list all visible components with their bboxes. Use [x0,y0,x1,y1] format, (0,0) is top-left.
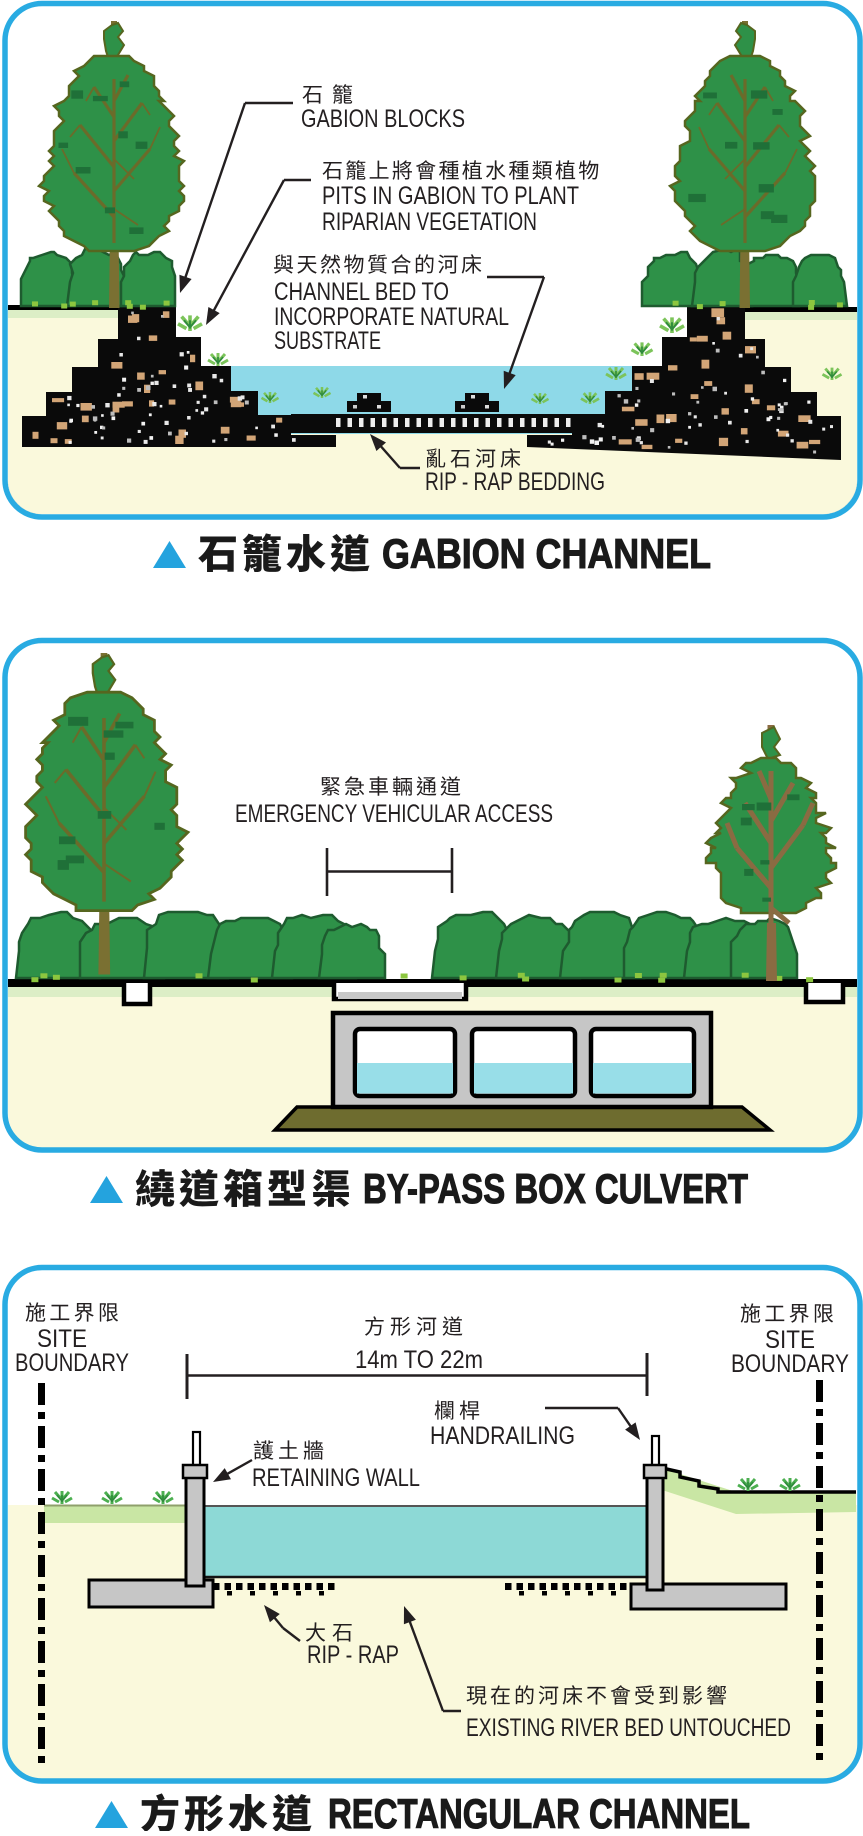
svg-text:RIP - RAP BEDDING: RIP - RAP BEDDING [425,468,605,496]
svg-text:HANDRAILING: HANDRAILING [430,1422,575,1450]
svg-text:EMERGENCY VEHICULAR ACCESS: EMERGENCY VEHICULAR ACCESS [235,800,553,828]
svg-text:PITS IN GABION TO PLANT: PITS IN GABION TO PLANT [322,182,579,210]
svg-text:BOUNDARY: BOUNDARY [731,1350,849,1378]
svg-text:RECTANGULAR CHANNEL: RECTANGULAR CHANNEL [328,1790,750,1831]
svg-text:BOUNDARY: BOUNDARY [15,1349,129,1377]
svg-text:GABION BLOCKS: GABION BLOCKS [301,105,465,133]
svg-text:BY-PASS BOX CULVERT: BY-PASS BOX CULVERT [363,1165,748,1212]
svg-text:RIPARIAN VEGETATION: RIPARIAN VEGETATION [322,208,537,236]
svg-text:EXISTING RIVER BED UNTOUCHED: EXISTING RIVER BED UNTOUCHED [466,1714,791,1742]
svg-text:14m TO 22m: 14m TO 22m [355,1346,483,1374]
svg-text:RIP - RAP: RIP - RAP [307,1641,399,1669]
svg-text:RETAINING WALL: RETAINING WALL [252,1464,420,1492]
svg-text:SUBSTRATE: SUBSTRATE [274,327,381,355]
svg-text:CHANNEL BED TO: CHANNEL BED TO [274,278,449,306]
svg-text:GABION CHANNEL: GABION CHANNEL [382,530,711,577]
